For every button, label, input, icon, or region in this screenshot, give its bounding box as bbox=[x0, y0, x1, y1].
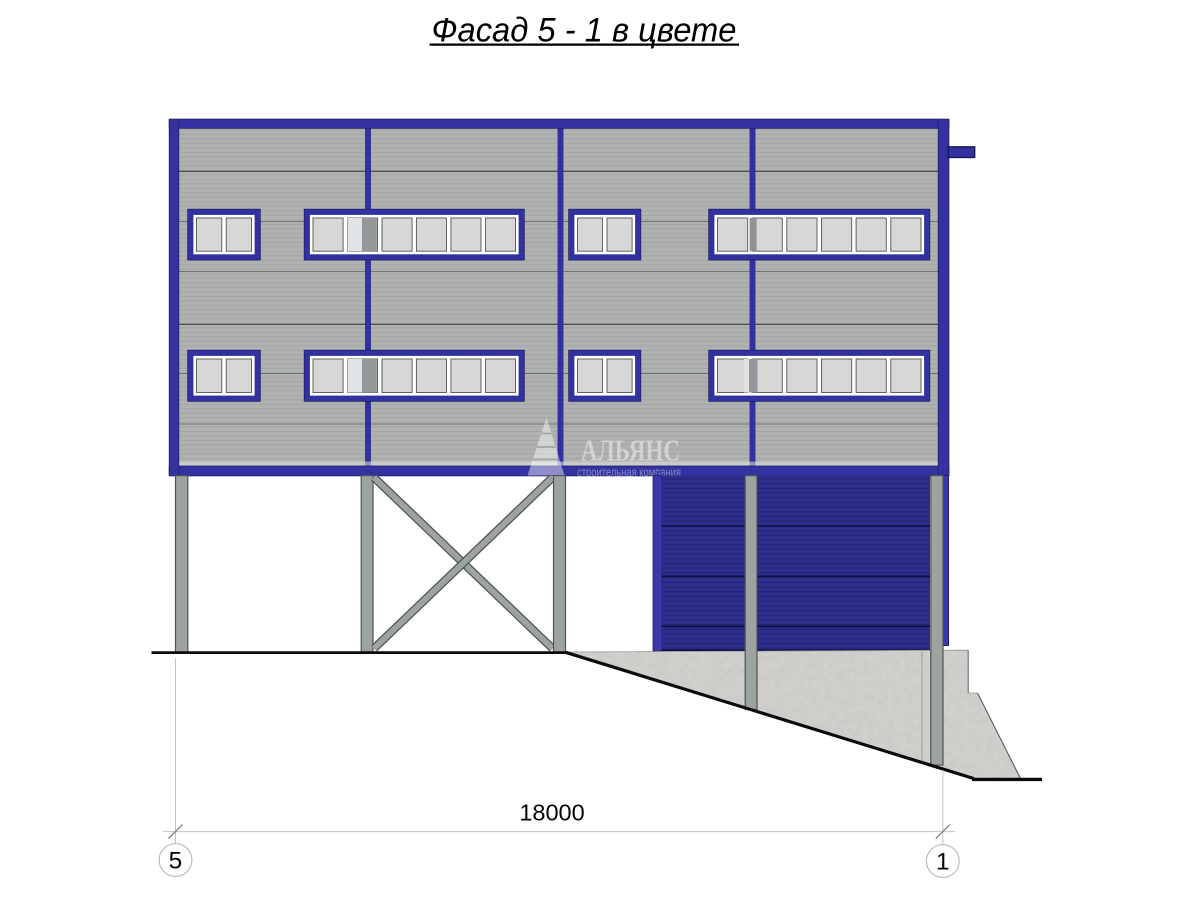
svg-text:5: 5 bbox=[169, 848, 183, 875]
svg-text:1: 1 bbox=[936, 849, 950, 876]
svg-text:18000: 18000 bbox=[519, 800, 584, 826]
